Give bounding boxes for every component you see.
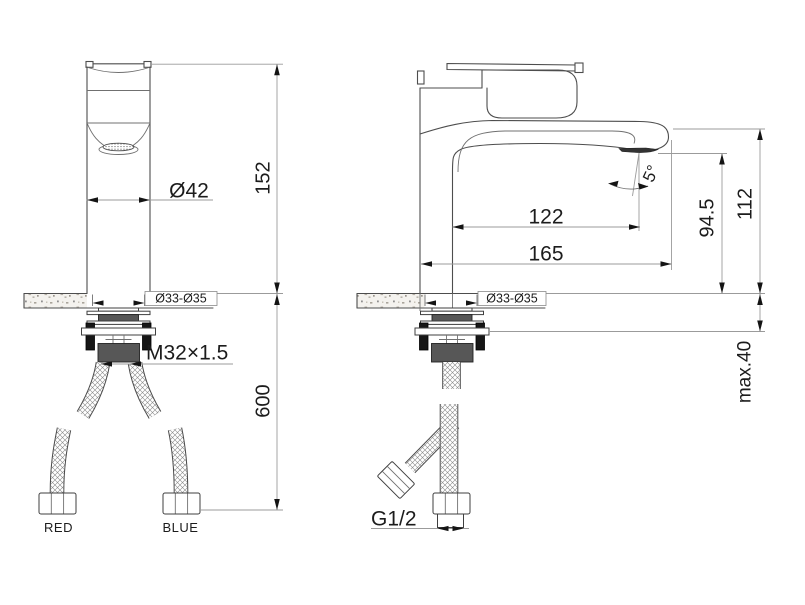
side-view: Ø33-Ø35 122 165 5° 94.5 112 max.40 G1/2 (357, 63, 765, 531)
faucet-body-front (86, 62, 151, 294)
dim-overall-height: 112 (735, 188, 757, 220)
supply-hoses-front (39, 363, 200, 514)
mounting-hardware-front (82, 308, 156, 362)
hot-hose-label: RED (44, 520, 73, 535)
dim-overall-reach: 165 (528, 243, 563, 266)
dim-spout-height: 94.5 (697, 199, 719, 238)
lever-end-left (86, 62, 93, 68)
cold-hose-label: BLUE (163, 520, 199, 535)
lever-tip (575, 63, 583, 73)
hose-cold (135, 363, 200, 514)
dim-body-thread: M32×1.5 (146, 342, 228, 365)
hose-straight-lower (433, 404, 470, 528)
dim-max-deck-thickness: max.40 (735, 341, 756, 403)
dim-spray-angle: 5° (639, 162, 663, 185)
dim-deck-hole-front: Ø33-Ø35 (155, 292, 206, 306)
aerator-side (619, 148, 658, 153)
handle-block (482, 70, 577, 118)
supply-hoses-side (377, 362, 470, 528)
drawing-canvas: Ø33-Ø35 Ø42 152 600 M32×1.5 RED BLUE (0, 0, 805, 605)
dim-spout-reach: 122 (528, 206, 563, 229)
handle-tab (418, 71, 425, 84)
faucet-technical-drawing: Ø33-Ø35 Ø42 152 600 M32×1.5 RED BLUE (0, 0, 805, 605)
dim-spout-diameter: Ø42 (169, 180, 209, 203)
dim-deck-hole-side: Ø33-Ø35 (486, 292, 537, 306)
hose-nut (433, 493, 470, 514)
dim-supply-thread: G1/2 (371, 508, 417, 531)
mounting-hardware-side (415, 308, 489, 362)
hose-hot (39, 363, 103, 514)
thread-stub (438, 514, 464, 528)
lever-end-right (144, 62, 151, 68)
handle-lever (447, 63, 583, 118)
dim-height-to-deck: 152 (253, 161, 275, 194)
hose-nut-hot (39, 493, 76, 514)
front-view: Ø33-Ø35 Ø42 152 600 M32×1.5 RED BLUE (24, 62, 283, 536)
hose-nut-cold (163, 493, 200, 514)
dim-hose-length: 600 (253, 384, 275, 417)
